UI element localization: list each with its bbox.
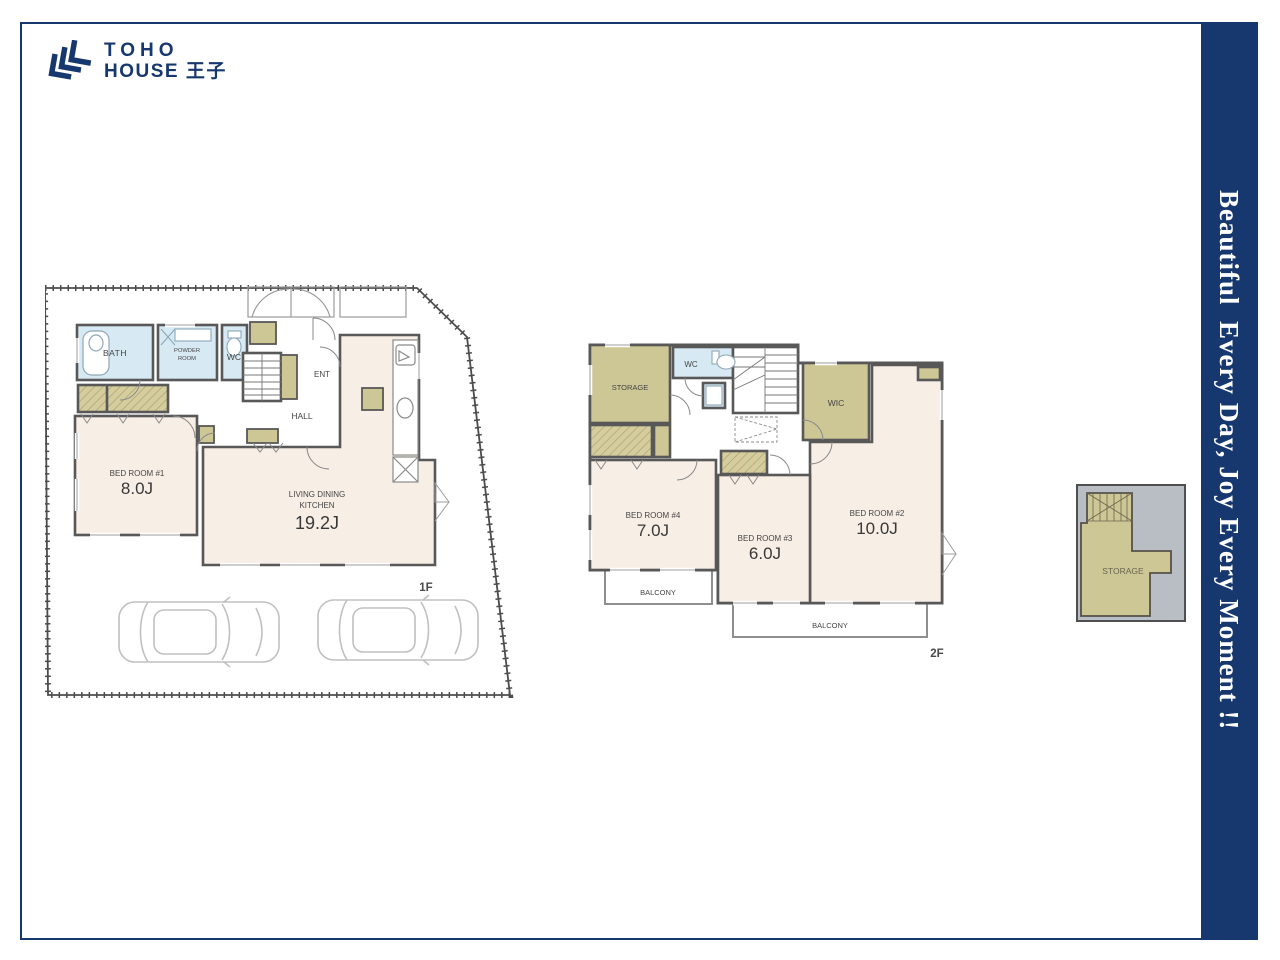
washer-icon-2f [706,386,722,405]
bedroom2-shelf [918,367,940,380]
wc-label-2f: WC [684,360,698,369]
wic-label: WIC [828,398,845,408]
wc-label-1f: WC [227,352,241,362]
kitchen-counter [393,340,418,482]
floor-plan-1f: BATH POWDER ROOM WC ENT HALL BED ROOM #1… [45,283,515,708]
bath-label: BATH [103,348,127,358]
attic-storage-label: STORAGE [1102,566,1144,576]
balcony-left-label: BALCONY [640,588,676,597]
ent-label: ENT [314,370,330,379]
brand-line2: HOUSE 王子 [104,62,227,83]
hall-label: HALL [291,411,313,421]
attic-storage-plan: STORAGE [1075,483,1187,623]
bedroom4-label: BED ROOM #4 [626,511,681,520]
bedroom1-label: BED ROOM #1 [110,469,165,478]
floor-label-2f: 2F [930,648,943,660]
closet-2f-left [590,425,652,457]
bedroom1-area: 8.0J [121,479,153,498]
banner-slogan: Beautiful Every Day, Joy Every Moment !! [1201,22,1257,940]
floor-label-1f: 1F [419,582,432,594]
side-banner: Beautiful Every Day, Joy Every Moment !! [1201,22,1258,940]
balcony-door-icon [942,533,956,575]
closet-1f [78,385,168,412]
storage-label-2f: STORAGE [612,383,649,392]
bedroom3-area: 6.0J [749,544,781,563]
closet-bedroom3 [721,451,767,474]
powder-label-2: ROOM [178,356,196,362]
powder-label-1: POWDER [174,348,200,354]
floor-plan-2f: STORAGE WC WIC BED ROOM #4 7.0J BED ROOM… [585,335,960,665]
toho-house-logo-icon [42,40,94,84]
bedroom3-label: BED ROOM #3 [738,534,793,543]
bedroom4-area: 7.0J [637,521,669,540]
brand-name: TOHO HOUSE 王子 [104,41,227,82]
flyer-page: TOHO HOUSE 王子 Beautiful Every Day, Joy E… [0,0,1280,960]
kitchen-island [362,388,383,410]
bedroom2-label: BED ROOM #2 [850,509,905,518]
ldk-label-1: LIVING DINING [289,490,345,499]
ldk-area: 19.2J [295,513,339,533]
brand-line1: TOHO [104,41,227,62]
ldk-label-2: KITCHEN [299,501,334,510]
bedroom2-area: 10.0J [856,519,898,538]
closet-2f-small [654,425,670,457]
balcony-bottom-label: BALCONY [812,621,848,630]
brand-logo: TOHO HOUSE 王子 [42,40,227,84]
